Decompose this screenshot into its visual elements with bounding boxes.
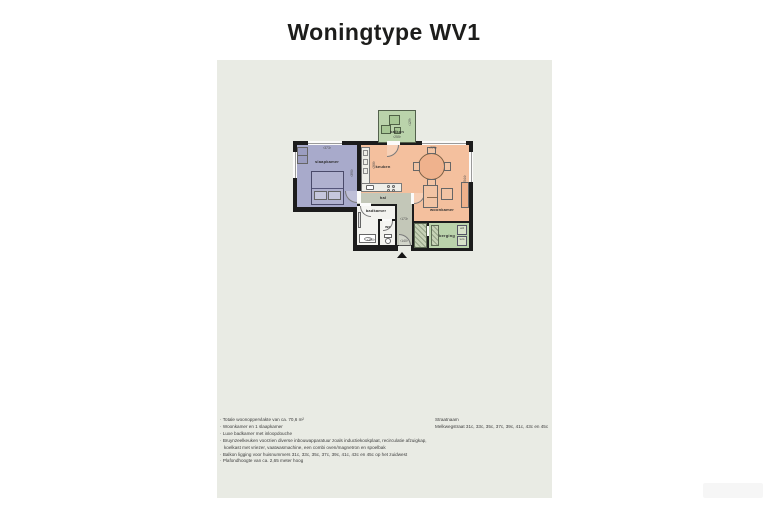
feature-item: Luxe badkamer met inloopdouche <box>220 431 432 438</box>
stove-burner <box>392 189 395 192</box>
feature-item: Balkon ligging voor huisnummers 31c, 33c… <box>220 452 432 459</box>
cabinet <box>461 182 469 208</box>
label-hal: hal <box>380 195 386 200</box>
chair <box>413 162 420 171</box>
armchair <box>441 188 453 200</box>
wall-segment <box>378 219 380 245</box>
door-opening-entree <box>398 246 411 251</box>
balcony-furniture <box>389 115 400 125</box>
stove-burner <box>387 185 390 188</box>
label-keuken: keuken <box>376 164 391 169</box>
radiator <box>358 212 361 228</box>
dim-slaapkamer-width: ‹373› <box>323 146 331 150</box>
dim-hal-width: ‹173› <box>400 217 408 221</box>
wardrobe <box>297 155 308 164</box>
address-block: Straatnaam Melkwegstraat 31c, 33c, 35c, … <box>435 417 555 431</box>
feature-item: Woonkamer en 1 slaapkamer <box>220 424 432 431</box>
watermark <box>703 483 763 498</box>
label-woonkamer: woonkamer <box>430 207 454 212</box>
window <box>469 152 473 182</box>
dim-entree-width: ‹140› <box>400 239 408 243</box>
kitchen-counter <box>361 183 402 192</box>
dim-woonkamer-width: ‹775› <box>429 146 437 150</box>
dim-balkon-width: ‹255› <box>393 135 401 139</box>
stove-burner <box>387 189 390 192</box>
dining-table <box>418 153 445 180</box>
feature-item: Bruynzeelkeuken voorzien diverse inbouwa… <box>220 438 432 452</box>
bed <box>311 171 344 205</box>
page-title: Woningtype WV1 <box>0 19 768 46</box>
pillow <box>328 191 341 200</box>
sink <box>366 185 374 190</box>
chair <box>444 162 451 171</box>
pillow <box>314 191 327 200</box>
floorplan: wd wm balkon slaapkamer keuken woonkamer… <box>290 107 475 259</box>
feature-list: Totale woonoppervlakte van ca. 70,6 m² W… <box>220 417 432 465</box>
meter-cupboard <box>414 223 427 248</box>
dim-woonkamer-height: ‹544› <box>463 175 467 183</box>
dim-badkamer-width: ‹190› <box>367 238 375 242</box>
address-line: Melkwegstraat 31c, 33c, 35c, 37c, 39c, 4… <box>435 424 555 431</box>
dryer-unit: wd <box>457 225 467 235</box>
door-opening-slaapkamer <box>357 191 361 203</box>
dim-keuken-height: ‹266› <box>372 161 376 169</box>
north-arrow-icon <box>397 252 407 258</box>
toilet-bowl <box>385 238 391 244</box>
washer-label: wm <box>458 237 466 241</box>
sofa <box>423 185 438 208</box>
door-opening-berging <box>427 226 429 236</box>
feature-item: Totale woonoppervlakte van ca. 70,6 m² <box>220 417 432 424</box>
label-badkamer: badkamer <box>366 208 387 213</box>
stove-burner <box>392 185 395 188</box>
dim-balkon-height: ‹129› <box>408 118 412 126</box>
window <box>422 141 466 145</box>
window <box>308 141 342 145</box>
label-berging: berging <box>439 233 455 238</box>
dryer-label: wd <box>458 226 466 230</box>
feature-item: Plafondhoogte van ca. 2,65 meter hoog <box>220 458 432 465</box>
washer-unit: wm <box>457 236 467 246</box>
address-heading: Straatnaam <box>435 417 555 424</box>
page: Woningtype WV1 <box>0 0 768 512</box>
label-slaapkamer: slaapkamer <box>315 159 339 164</box>
kitchen-counter <box>361 147 370 185</box>
storage-shelf <box>431 225 439 246</box>
label-balkon: balkon <box>390 129 404 134</box>
dim-slaapkamer-height: ‹390› <box>350 169 354 177</box>
label-wc: wc <box>385 224 391 229</box>
